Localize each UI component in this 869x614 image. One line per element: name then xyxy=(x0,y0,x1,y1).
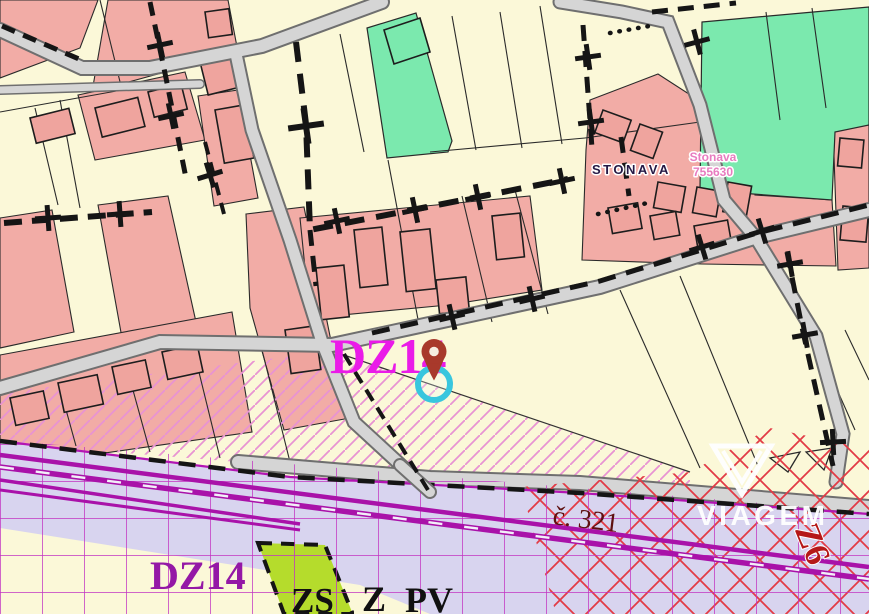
zone-pv-label: PV xyxy=(405,580,453,614)
pin-hole xyxy=(429,347,439,357)
cadastral-code-label: 755630 xyxy=(693,165,733,179)
cadastral-name-label: Stonava xyxy=(690,150,737,164)
zone-dz14-secondary-label: DZ14 xyxy=(150,553,246,598)
location-pin[interactable] xyxy=(418,339,450,400)
watermark-brand: VIAGEM xyxy=(697,500,828,531)
zone-z-label: Z xyxy=(362,579,386,614)
map-canvas[interactable]: STONAVA Stonava 755630 DZ14 DZ14 č. 321 … xyxy=(0,0,869,614)
zone-zs-label: ZS xyxy=(291,581,334,614)
municipality-label: STONAVA xyxy=(592,162,671,177)
zoning-map-image: STONAVA Stonava 755630 DZ14 DZ14 č. 321 … xyxy=(0,0,869,614)
